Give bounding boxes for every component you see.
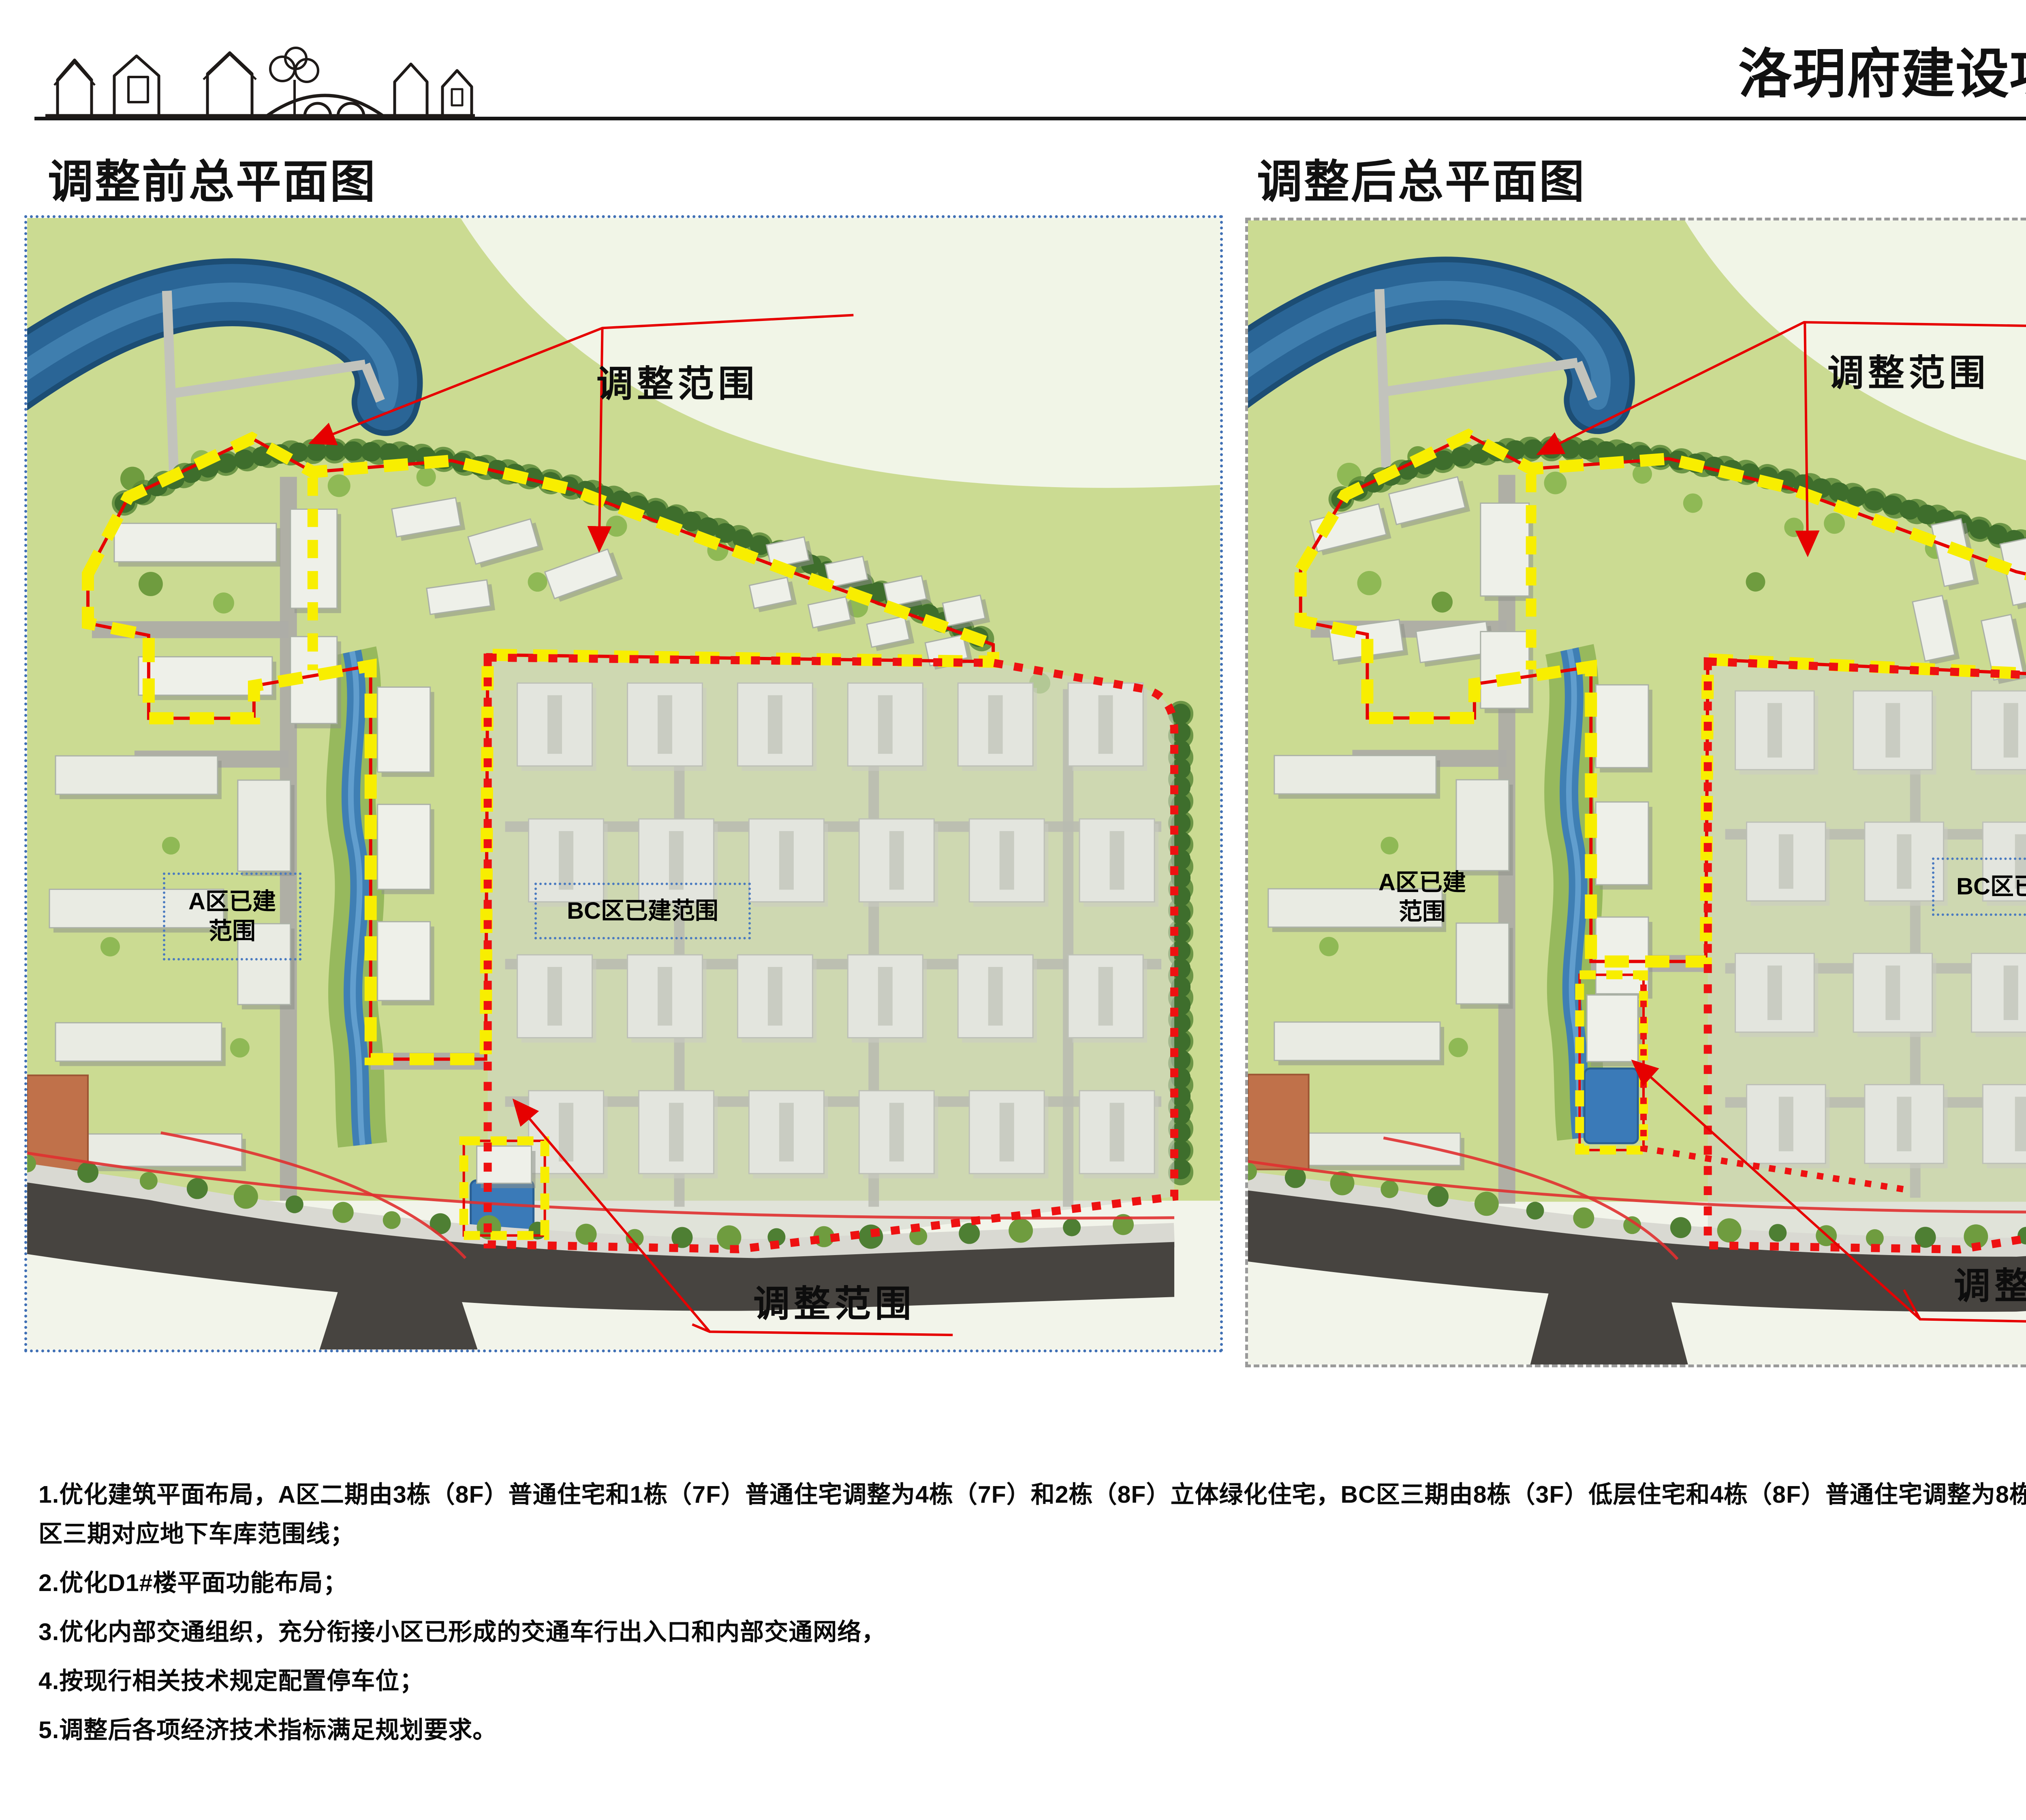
built-zone-faded [488, 658, 1174, 1249]
note-item: 4.按现行相关技术规定配置停车位； [38, 1662, 2026, 1701]
built-zone-faded [1708, 661, 2026, 1249]
stream-corridor [351, 652, 363, 1145]
section-heading-after: 调整后总平面图 [1257, 145, 1586, 211]
adjust-range-label-top: 调整范围 [1827, 343, 1990, 396]
a-built-label-line2: 范围 [1399, 897, 1446, 927]
bc-built-label: BC区已建范围 [567, 896, 718, 926]
a-built-label: A区已建 范围 [1370, 863, 1475, 932]
a-built-label-line1: A区已建 [1378, 868, 1466, 898]
site-plan-before: 调整范围 A区已建 范围 BC区已建范围 调整范围 [24, 215, 1223, 1352]
adjust-range-label-bottom: 调整范围 [1954, 1256, 2026, 1309]
a-built-label-box: A区已建 范围 [163, 873, 301, 960]
note-item: 3.优化内部交通组织，充分衔接小区已形成的交通车行出入口和内部交通网络， [38, 1613, 2026, 1652]
adjustment-notes: 1.优化建筑平面布局，A区二期由3栋（8F）普通住宅和1栋（7F）普通住宅调整为… [38, 1475, 2026, 1760]
site-plan-after: 调整范围 A区已建 范围 BC区已建范围 调整范围 [1245, 218, 2026, 1367]
bc-built-label-box: BC区已建范围 [1932, 858, 2026, 916]
note-item: 5.调整后各项经济技术指标满足规划要求。 [38, 1711, 2026, 1750]
a-built-label-line2: 范围 [209, 917, 256, 946]
section-heading-before: 调整前总平面图 [48, 145, 377, 211]
notice-page: 洛玥府建设项目方案设计调整公示 调整前总平面图 调整后总平面图 调整范围 [0, 0, 2026, 1820]
note-item: 1.优化建筑平面布局，A区二期由3栋（8F）普通住宅和1栋（7F）普通住宅调整为… [38, 1475, 2026, 1554]
adjust-range-label-bottom: 调整范围 [753, 1274, 915, 1327]
adjust-range-label-top: 调整范围 [596, 354, 759, 407]
note-item: 2.优化D1#楼平面功能布局； [38, 1563, 2026, 1603]
village-skyline-sketch [45, 37, 475, 120]
page-title: 洛玥府建设项目方案设计调整公示 [1738, 31, 2026, 108]
bc-built-label-box: BC区已建范围 [534, 883, 751, 939]
bc-built-label: BC区已建范围 [1956, 872, 2026, 902]
a-built-label-line1: A区已建 [188, 887, 276, 917]
